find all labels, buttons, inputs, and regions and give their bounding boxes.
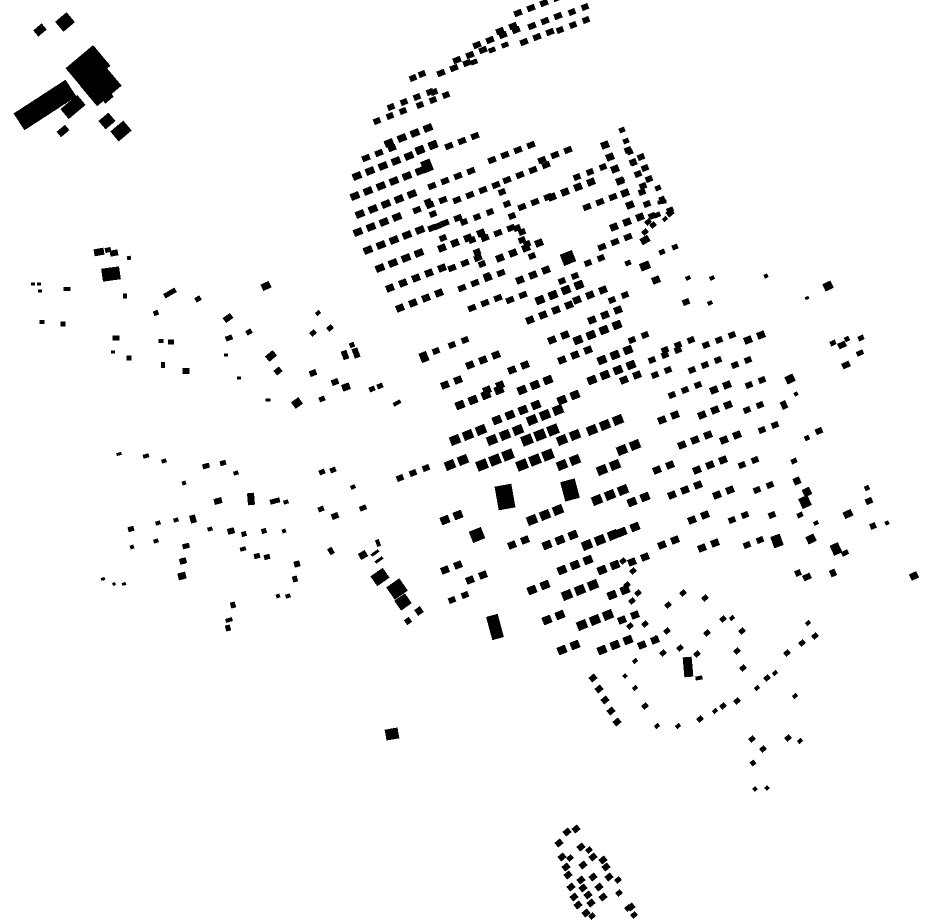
building <box>61 322 66 327</box>
building <box>266 399 271 402</box>
building <box>127 256 132 261</box>
building <box>123 294 127 299</box>
building <box>224 354 228 357</box>
building <box>111 351 115 354</box>
building <box>37 283 41 286</box>
building <box>683 657 694 678</box>
building <box>127 356 132 361</box>
building <box>101 266 121 281</box>
building <box>247 493 255 506</box>
building-footprint-map <box>0 0 930 924</box>
building <box>183 368 190 374</box>
building <box>38 290 42 293</box>
building <box>237 377 241 380</box>
building <box>31 283 35 286</box>
building <box>161 362 165 368</box>
building <box>385 727 400 740</box>
building <box>64 287 71 291</box>
building <box>40 320 45 324</box>
building <box>168 340 174 345</box>
building <box>159 339 164 343</box>
building <box>113 336 120 341</box>
